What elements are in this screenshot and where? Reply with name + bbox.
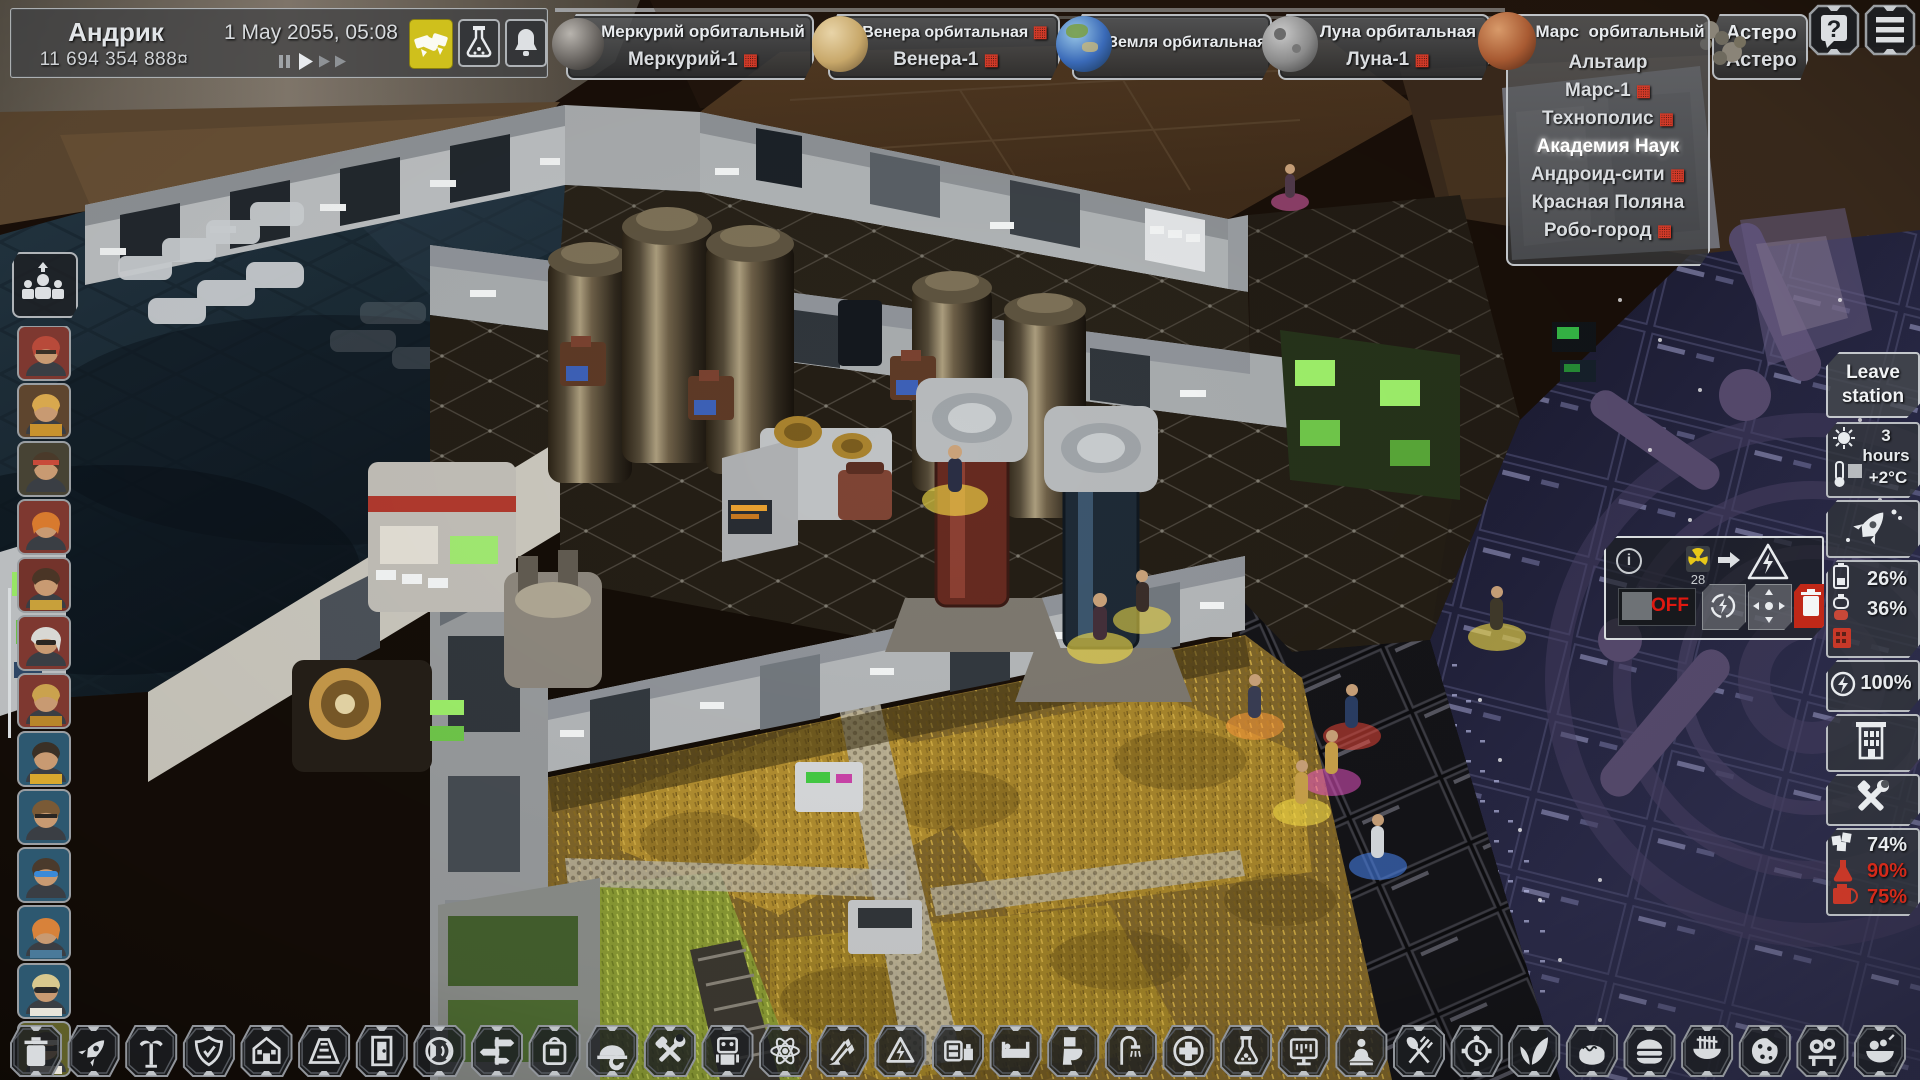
svg-text:?: ? bbox=[1827, 16, 1842, 43]
